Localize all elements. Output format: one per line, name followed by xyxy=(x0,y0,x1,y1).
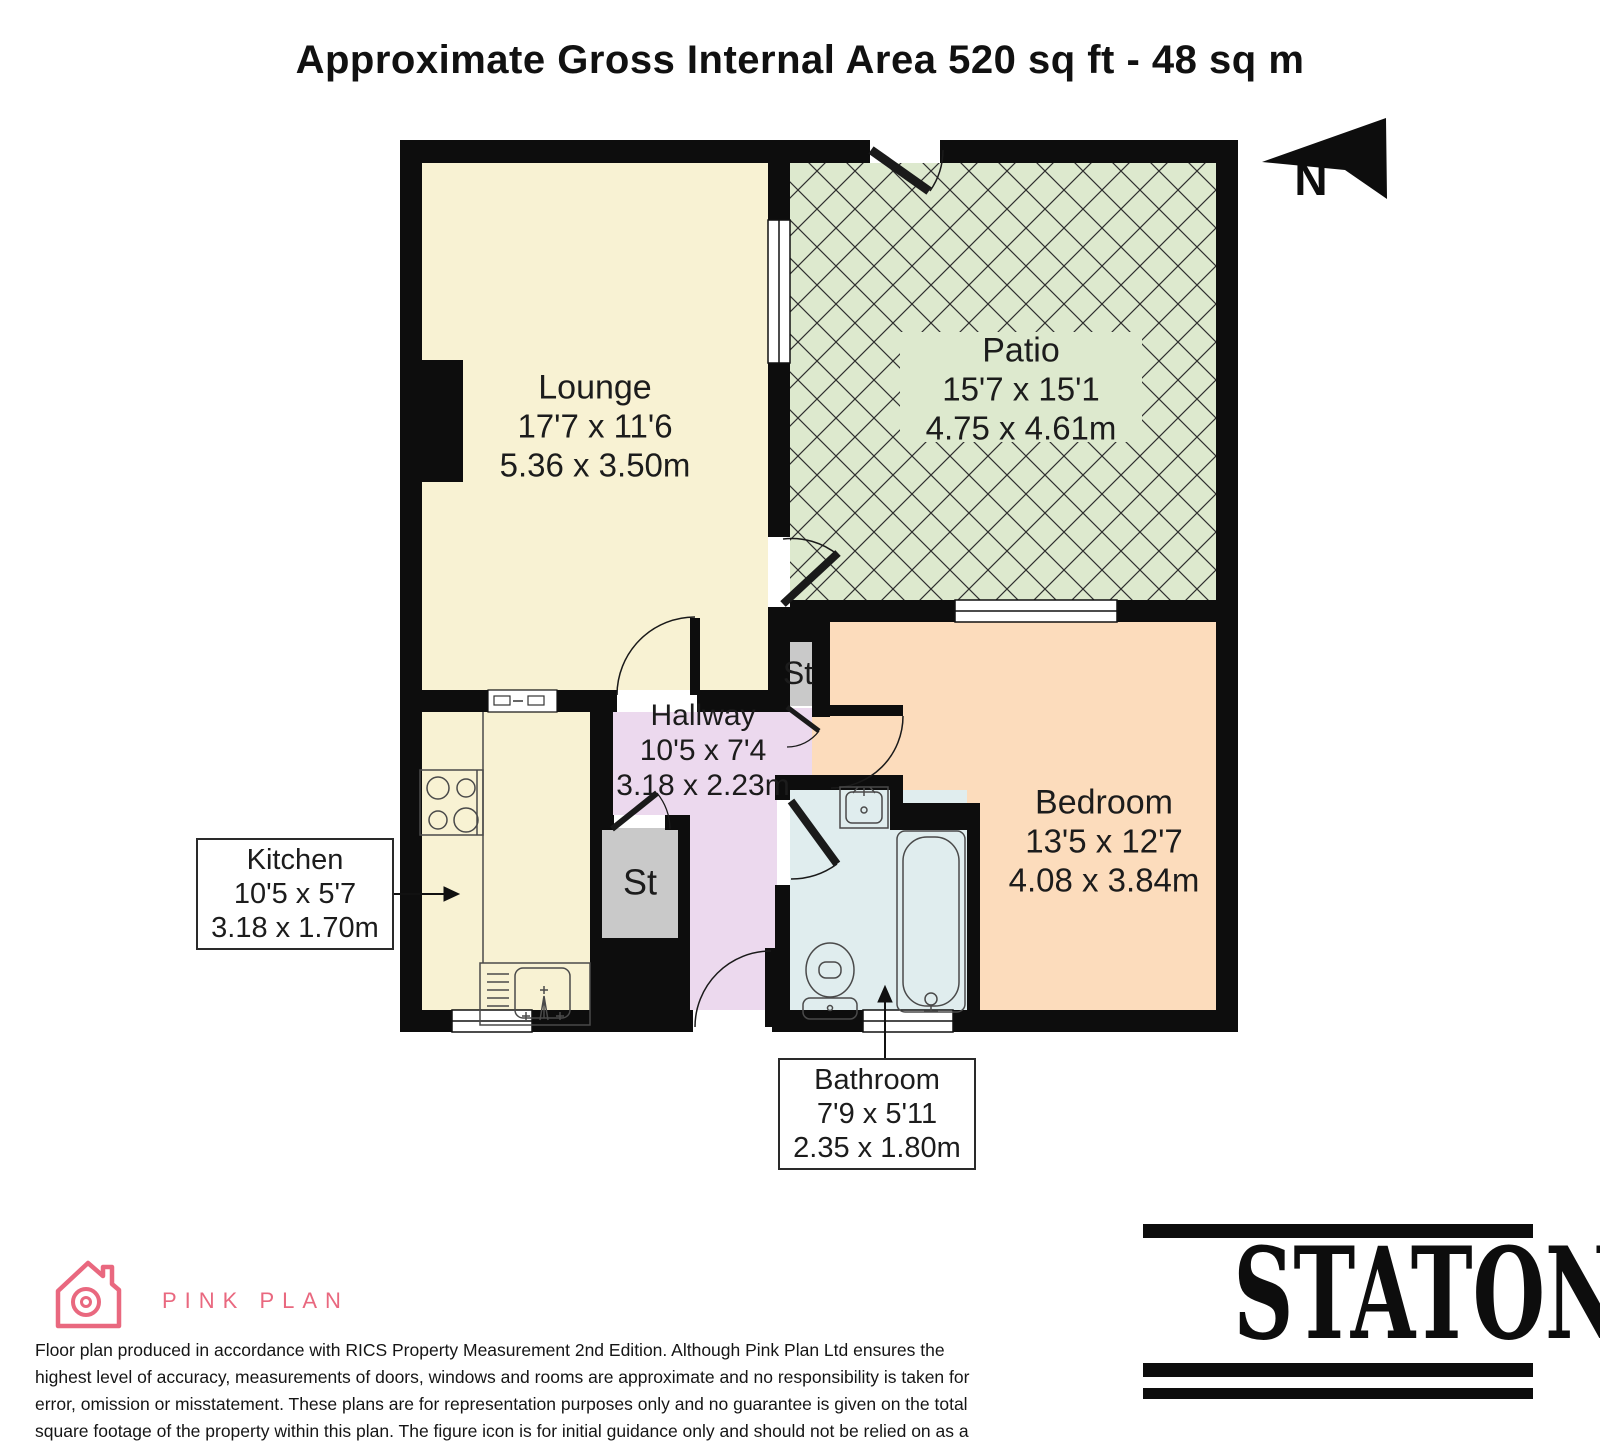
patio-label: Patio 15'7 x 15'1 4.75 x 4.61m xyxy=(926,331,1117,448)
pink-plan-logo-icon xyxy=(58,1263,119,1326)
room-dims-imperial: 7'9 x 5'11 xyxy=(817,1097,937,1131)
statons-logo-wordmark: STATONS xyxy=(1118,1231,1554,1357)
wall-top-left xyxy=(400,140,870,163)
door-leaf-bedroom xyxy=(830,705,903,716)
hallway-floor-corridor xyxy=(690,775,777,1010)
room-dims-metric: 5.36 x 3.50m xyxy=(500,446,691,483)
wall-bathroom-left-lower xyxy=(775,885,790,1010)
room-dims-metric: 3.18 x 2.23m xyxy=(616,769,789,803)
room-name: Bedroom xyxy=(1009,784,1200,822)
wall-storage1-left xyxy=(770,622,782,710)
room-dims-imperial: 17'7 x 11'6 xyxy=(500,408,691,445)
statons-logo: STATONS xyxy=(1118,1215,1554,1415)
statons-logo-text: STATONS xyxy=(1233,1231,1600,1357)
room-name: Patio xyxy=(926,332,1117,370)
room-dims-metric: 4.75 x 4.61m xyxy=(926,409,1117,446)
lounge-label: Lounge 17'7 x 11'6 5.36 x 3.50m xyxy=(500,368,691,485)
wall-right xyxy=(1216,140,1238,1032)
wall-storage2-right xyxy=(678,815,690,938)
north-label: N xyxy=(1294,152,1327,206)
room-dims-imperial: 10'5 x 7'4 xyxy=(616,734,789,768)
room-dims-metric: 4.08 x 3.84m xyxy=(1009,861,1200,898)
wall-block-lower xyxy=(590,938,690,1032)
room-dims-imperial: 15'7 x 15'1 xyxy=(926,371,1117,408)
bathroom-callout-box: Bathroom 7'9 x 5'11 2.35 x 1.80m xyxy=(778,1058,976,1170)
room-dims-metric: 2.35 x 1.80m xyxy=(793,1131,961,1165)
wall-chimney-breast xyxy=(420,360,463,482)
wall-left xyxy=(400,140,422,1032)
disclaimer-text: Floor plan produced in accordance with R… xyxy=(35,1337,983,1450)
bedroom-label: Bedroom 13'5 x 12'7 4.08 x 3.84m xyxy=(1009,783,1200,900)
room-dims-imperial: 13'5 x 12'7 xyxy=(1009,823,1200,860)
wall-storage2-left xyxy=(590,817,602,938)
serving-hatch xyxy=(488,690,557,712)
wall-kitchen-right xyxy=(590,712,613,817)
kitchen-floor xyxy=(422,712,590,1010)
room-name: Bathroom xyxy=(814,1063,940,1097)
room-name: Kitchen xyxy=(247,843,344,877)
room-dims-metric: 3.18 x 1.70m xyxy=(211,911,379,945)
kitchen-callout-box: Kitchen 10'5 x 5'7 3.18 x 1.70m xyxy=(196,838,394,950)
door-leaf-entrance xyxy=(765,948,777,1027)
room-name: Lounge xyxy=(500,369,691,407)
storage1-label: St xyxy=(783,655,813,691)
wall-top-right xyxy=(940,140,1238,163)
wall-bathroom-right xyxy=(967,830,980,1010)
hallway-label: Hallway 10'5 x 7'4 3.18 x 2.23m xyxy=(616,698,789,804)
storage2-label: St xyxy=(623,863,657,904)
opening-front-door xyxy=(693,1010,772,1032)
pink-plan-logo-text: PINK PLAN xyxy=(162,1288,349,1314)
page-title: Approximate Gross Internal Area 520 sq f… xyxy=(0,38,1600,83)
floorplan-page: Approximate Gross Internal Area 520 sq f… xyxy=(0,0,1600,1450)
statons-logo-bar-bottom xyxy=(1143,1388,1533,1399)
wall-bath-alcove-top xyxy=(898,803,980,830)
statons-logo-bar-middle xyxy=(1143,1363,1533,1377)
door-leaf-lounge xyxy=(690,618,700,695)
room-name: Hallway xyxy=(616,699,789,733)
room-dims-imperial: 10'5 x 5'7 xyxy=(234,877,356,911)
